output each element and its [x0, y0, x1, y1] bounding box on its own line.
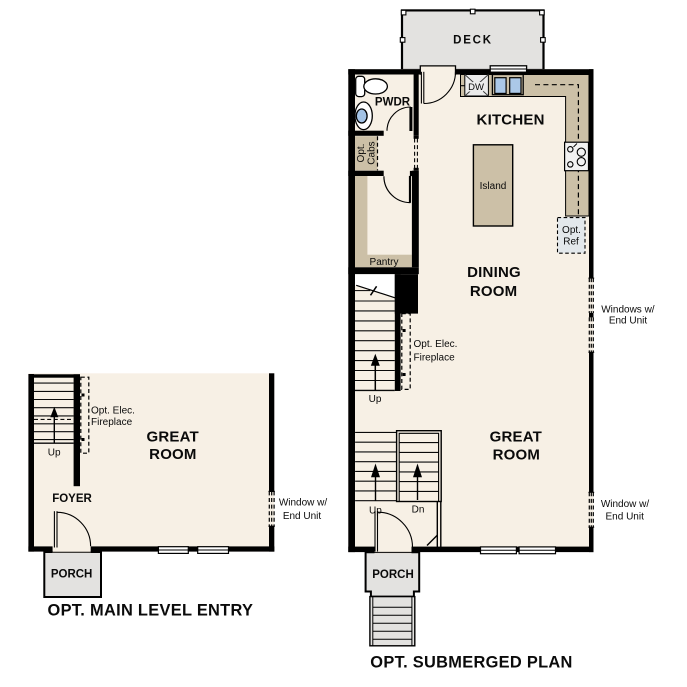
svg-text:Fireplace: Fireplace	[414, 353, 456, 364]
svg-text:KITCHEN: KITCHEN	[477, 111, 545, 128]
svg-text:End Unit: End Unit	[283, 511, 322, 522]
svg-text:Opt.: Opt.	[562, 225, 581, 236]
svg-text:DW: DW	[468, 82, 484, 93]
svg-text:Cabs: Cabs	[367, 141, 378, 164]
svg-text:Ref: Ref	[563, 237, 579, 248]
svg-text:Island: Island	[480, 181, 507, 192]
svg-text:Pantry: Pantry	[370, 257, 399, 268]
svg-text:Up: Up	[369, 394, 382, 405]
svg-text:End Unit: End Unit	[609, 315, 648, 326]
svg-text:PWDR: PWDR	[375, 96, 411, 108]
svg-text:PORCH: PORCH	[51, 569, 93, 581]
svg-text:Window w/: Window w/	[279, 497, 328, 508]
svg-text:GREAT: GREAT	[147, 428, 199, 445]
svg-text:Dn: Dn	[412, 504, 425, 515]
svg-text:GREAT: GREAT	[490, 428, 542, 445]
svg-text:FOYER: FOYER	[52, 493, 92, 505]
svg-text:ROOM: ROOM	[493, 446, 540, 463]
svg-text:Opt. Elec.: Opt. Elec.	[91, 406, 135, 417]
svg-text:Opt. Elec.: Opt. Elec.	[414, 339, 458, 350]
svg-text:Fireplace: Fireplace	[91, 417, 133, 428]
svg-text:End Unit: End Unit	[606, 512, 645, 523]
svg-text:DECK: DECK	[453, 35, 493, 47]
svg-text:Up: Up	[48, 447, 61, 458]
svg-text:DINING: DINING	[467, 264, 521, 281]
svg-text:Windows w/: Windows w/	[601, 304, 655, 315]
svg-text:Up: Up	[369, 506, 382, 517]
svg-text:OPT. SUBMERGED PLAN: OPT. SUBMERGED PLAN	[370, 654, 572, 672]
svg-text:PORCH: PORCH	[372, 569, 414, 581]
svg-text:Window w/: Window w/	[601, 499, 650, 510]
svg-text:OPT. MAIN LEVEL ENTRY: OPT. MAIN LEVEL ENTRY	[48, 602, 254, 620]
svg-text:Opt.: Opt.	[356, 144, 367, 163]
svg-text:ROOM: ROOM	[470, 283, 517, 300]
svg-text:ROOM: ROOM	[149, 446, 196, 463]
